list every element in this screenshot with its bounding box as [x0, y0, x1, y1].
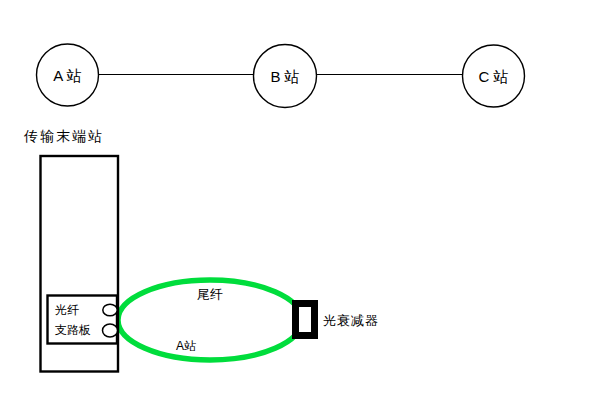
loop-station-label: A站: [176, 339, 196, 353]
station-label-c: C 站: [479, 68, 509, 85]
optical-port-bottom-icon: [103, 324, 118, 337]
pigtail-label: 尾纤: [197, 287, 223, 302]
diagram-canvas: A 站 B 站 C 站 传输末端站 光纤 支路板 尾纤 A站 光衰减器: [0, 0, 600, 400]
tributary-board-label: 支路板: [55, 323, 91, 337]
fiber-label: 光纤: [55, 303, 79, 317]
station-label-b: B 站: [270, 68, 299, 85]
optical-attenuator: [296, 304, 315, 336]
station-label-a: A 站: [53, 67, 81, 84]
optical-port-top-icon: [103, 304, 117, 316]
attenuator-label: 光衰减器: [323, 313, 379, 328]
network-diagram: A 站 B 站 C 站 传输末端站 光纤 支路板 尾纤 A站 光衰减器: [0, 0, 600, 400]
terminal-station-label: 传输末端站: [23, 128, 104, 144]
